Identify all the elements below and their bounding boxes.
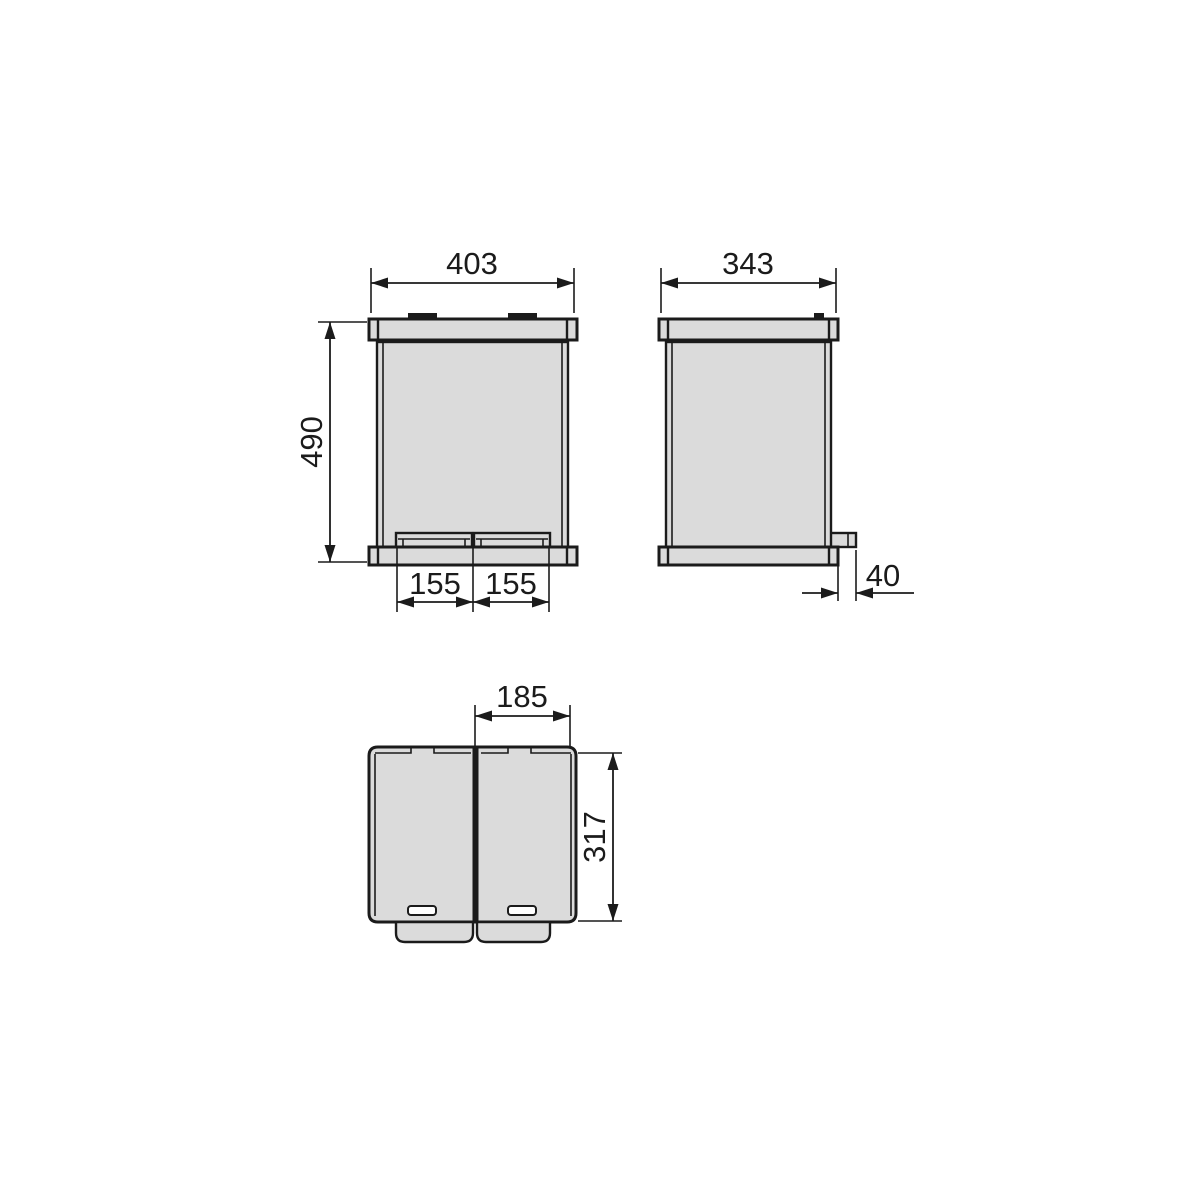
front-pedal-right bbox=[474, 533, 550, 547]
front-pedal-left bbox=[396, 533, 472, 547]
dim-top-lid-width: 185 bbox=[475, 679, 570, 746]
dim-label-top-depth: 317 bbox=[577, 811, 612, 863]
top-lid-left bbox=[369, 747, 474, 922]
dim-front-width: 403 bbox=[371, 246, 574, 313]
front-body bbox=[377, 342, 568, 547]
top-pedal-left bbox=[396, 922, 473, 942]
dim-label-pedal-right: 155 bbox=[485, 566, 537, 601]
front-view bbox=[369, 313, 577, 565]
technical-drawing-page: 403 490 155 155 bbox=[0, 0, 1200, 1200]
top-lid-right bbox=[477, 747, 576, 922]
dim-label-side-pedal: 40 bbox=[866, 558, 900, 593]
dim-label-pedal-left: 155 bbox=[409, 566, 461, 601]
side-view bbox=[659, 313, 856, 565]
dim-top-depth: 317 bbox=[577, 753, 622, 921]
side-body bbox=[666, 342, 831, 547]
dim-side-depth: 343 bbox=[661, 246, 836, 313]
dim-label-top-lid-width: 185 bbox=[496, 679, 548, 714]
dim-label-side-depth: 343 bbox=[722, 246, 774, 281]
front-lid-band bbox=[369, 319, 577, 340]
top-handle-slot-right bbox=[508, 906, 536, 915]
side-lid-band bbox=[659, 319, 838, 340]
dim-label-front-width: 403 bbox=[446, 246, 498, 281]
dim-label-front-height: 490 bbox=[294, 416, 329, 468]
top-handle-slot-left bbox=[408, 906, 436, 915]
side-base-band bbox=[659, 547, 838, 565]
top-view bbox=[369, 747, 576, 942]
dim-front-height: 490 bbox=[294, 322, 367, 562]
top-pedal-right bbox=[477, 922, 550, 942]
technical-drawing: 403 490 155 155 bbox=[0, 0, 1200, 1200]
